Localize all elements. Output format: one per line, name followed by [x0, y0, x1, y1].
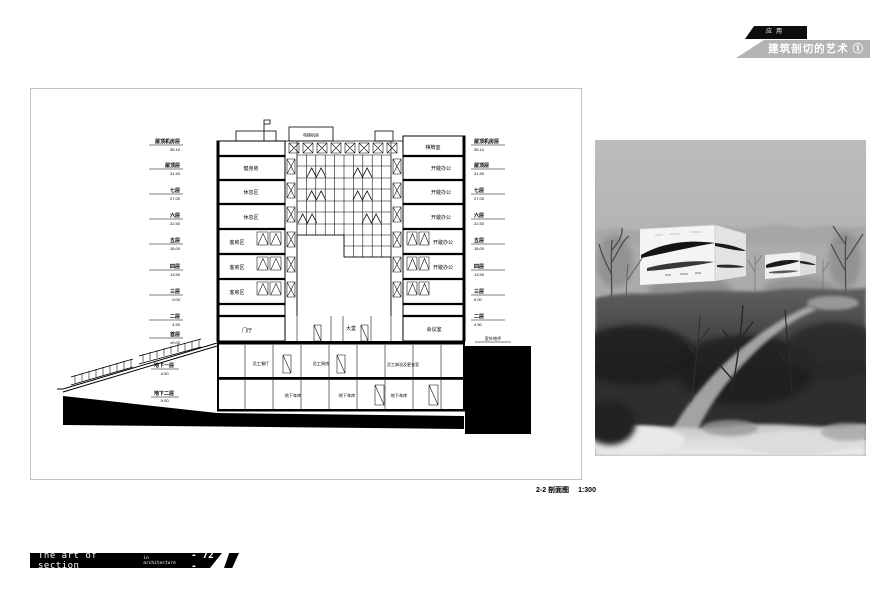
room-label: 休息区: [243, 189, 258, 196]
level-label: 地下二层: [154, 390, 174, 397]
level-elev: 18.00: [170, 246, 181, 251]
room-label: 大堂: [346, 325, 356, 332]
drawing-caption: 2-2 剖面图1:300: [536, 485, 605, 495]
room-label: 地下车库: [285, 392, 302, 399]
building-section-drawing: 屋顶机房层 35.10 屋顶层 31.50 七层 27.00 六层 22.50 …: [31, 89, 581, 479]
basement-level-labels: 地下一层 -4.50 地下二层 -9.00: [151, 362, 179, 403]
level-elev: 4.50: [172, 322, 181, 327]
atrium-void-walls: [297, 235, 391, 316]
section-drawing-panel: 屋顶机房层 35.10 屋顶层 31.50 七层 27.00 六层 22.50 …: [30, 88, 582, 480]
right-elevator-shaft: [391, 136, 403, 341]
grid-braces: [298, 168, 381, 223]
level-elev: 27.00: [170, 196, 181, 201]
site-section: 室外地坪: [57, 335, 531, 434]
level-elev: 27.00: [474, 196, 485, 201]
caption-name: 2-2 剖面图: [536, 487, 569, 494]
left-tower-windows: [257, 232, 281, 295]
room-label: 门厅: [242, 327, 252, 334]
footer-page-number: - 72 -: [191, 550, 222, 572]
b1-slab: [217, 377, 465, 380]
site-photo-rendering: [595, 140, 866, 456]
ground-floor: 门厅 大堂 会议室: [217, 316, 465, 345]
level-label: 六层: [474, 212, 484, 219]
footer-series-title: The art of section: [38, 551, 134, 571]
gray-mound: [702, 420, 758, 436]
level-label: 四层: [474, 263, 484, 270]
room-label: 员工餐厅: [253, 360, 270, 367]
room-label: 会议室: [426, 326, 441, 333]
room-label: 健身房: [243, 165, 258, 172]
room-label: 开敞办公: [431, 189, 451, 196]
level-label: 六层: [170, 212, 180, 219]
level-label: 屋顶机房层: [474, 138, 499, 145]
ground-slab: [217, 341, 465, 345]
grade-label: 室外地坪: [485, 335, 502, 342]
roof-room-label: 电梯机房: [303, 132, 319, 138]
site-photo: [595, 140, 866, 456]
caption-scale: 1:300: [578, 487, 596, 494]
level-label: 五层: [474, 237, 484, 244]
level-label: 地下一层: [154, 362, 174, 369]
level-label: 四层: [170, 263, 180, 270]
header-tab-label: 应用: [766, 29, 786, 35]
right-level-labels: 屋顶机房层 35.10 屋顶层 31.50 七层 27.00 六层 22.50 …: [471, 138, 505, 327]
right-earth-mass: [465, 346, 531, 434]
clearing: [807, 296, 859, 310]
room-label: 客房区: [229, 239, 244, 246]
footer-triangle: [224, 553, 239, 568]
level-elev: 31.50: [170, 171, 181, 176]
room-label: 开敞办公: [433, 239, 453, 246]
b2-slab: [217, 409, 465, 412]
room-label: 棋牌室: [425, 144, 440, 151]
level-label: 七层: [474, 187, 484, 194]
level-label: 屋顶层: [474, 162, 489, 169]
left-level-labels: 屋顶机房层 35.10 屋顶层 31.50 七层 27.00 六层 22.50 …: [149, 138, 183, 345]
basement-walls: [218, 341, 464, 411]
right-tower: 棋牌室 开敞办公 开敞办公 开敞办公 开敞办公 开敞办公: [403, 136, 465, 341]
level-elev: 9.00: [474, 297, 483, 302]
header-strip: 建筑剖切的艺术 ①: [736, 40, 870, 58]
level-elev: 22.50: [474, 221, 485, 226]
room-label: 休息区: [243, 214, 258, 221]
level-elev: 13.50: [170, 272, 181, 277]
level-elev: -9.00: [159, 398, 169, 403]
shaft-doors: [287, 159, 295, 297]
level-label: 二层: [474, 313, 484, 320]
room-label: 客房区: [229, 289, 244, 296]
level-label: 二层: [170, 313, 180, 320]
room-label: 地下车库: [391, 392, 408, 399]
roof-box: [375, 131, 393, 141]
header-tab: 应用: [745, 26, 807, 39]
atrium-curtain-wall: [285, 141, 403, 316]
left-tower: 健身房 休息区 休息区 客房区 客房区 客房区: [217, 141, 285, 341]
room-label: 开敞办公: [433, 264, 453, 271]
level-elev: 18.00: [474, 246, 485, 251]
level-label: 屋顶机房层: [155, 138, 180, 145]
right-tower-slabs: [403, 156, 465, 316]
level-elev: 13.50: [474, 272, 485, 277]
ground-doors: [314, 325, 368, 341]
shaft-doors: [393, 159, 401, 297]
level-label: 三层: [170, 288, 180, 295]
rooftop-structures: 电梯机房: [236, 120, 393, 141]
level-elev: 4.50: [474, 322, 483, 327]
room-label: 员工淋浴及更衣室: [387, 361, 419, 367]
level-elev: 31.50: [474, 171, 485, 176]
louver-boxes: [289, 143, 397, 153]
left-elevator-shaft: [285, 141, 297, 341]
footer-bar: The art of section in architecture - 72 …: [30, 553, 222, 568]
room-label: 开敞办公: [431, 214, 451, 221]
roof-box: [236, 131, 276, 141]
footer-series-subtitle: in architecture: [143, 556, 180, 566]
level-label: 五层: [170, 237, 180, 244]
right-tower-windows: [407, 232, 429, 295]
tree-canopy: [597, 236, 633, 288]
room-label: 地下车库: [339, 392, 356, 399]
book-page: 应用 建筑剖切的艺术 ① 屋顶机房层 35.10 屋顶层 31.50 七层 27…: [0, 0, 883, 600]
level-elev: ±0.00: [170, 340, 181, 345]
room-label: 开敞办公: [431, 165, 451, 172]
stair-railing-1: [71, 359, 133, 385]
block-side-face: [715, 225, 746, 281]
level-label: 首层: [170, 331, 180, 338]
building-block-large: [640, 225, 746, 285]
basement: 员工餐厅 员工厨房 员工淋浴及更衣室 地下车库 地下车库 地下车库: [217, 341, 465, 412]
level-label: 屋顶层: [165, 162, 180, 169]
level-label: 三层: [474, 288, 484, 295]
level-elev: 22.50: [170, 221, 181, 226]
level-elev: 35.10: [474, 147, 485, 152]
slope-ground-line: [57, 343, 217, 392]
page-title: 建筑剖切的艺术: [768, 43, 849, 55]
room-label: 客房区: [229, 264, 244, 271]
level-elev: -4.50: [159, 371, 169, 376]
roof-antenna: [264, 120, 270, 141]
level-elev: 9.00: [172, 297, 181, 302]
room-label: 员工厨房: [313, 360, 330, 367]
chapter-badge: ①: [853, 43, 865, 55]
ground-poche: [63, 396, 464, 429]
level-elev: 35.10: [170, 147, 181, 152]
level-label: 七层: [170, 187, 180, 194]
